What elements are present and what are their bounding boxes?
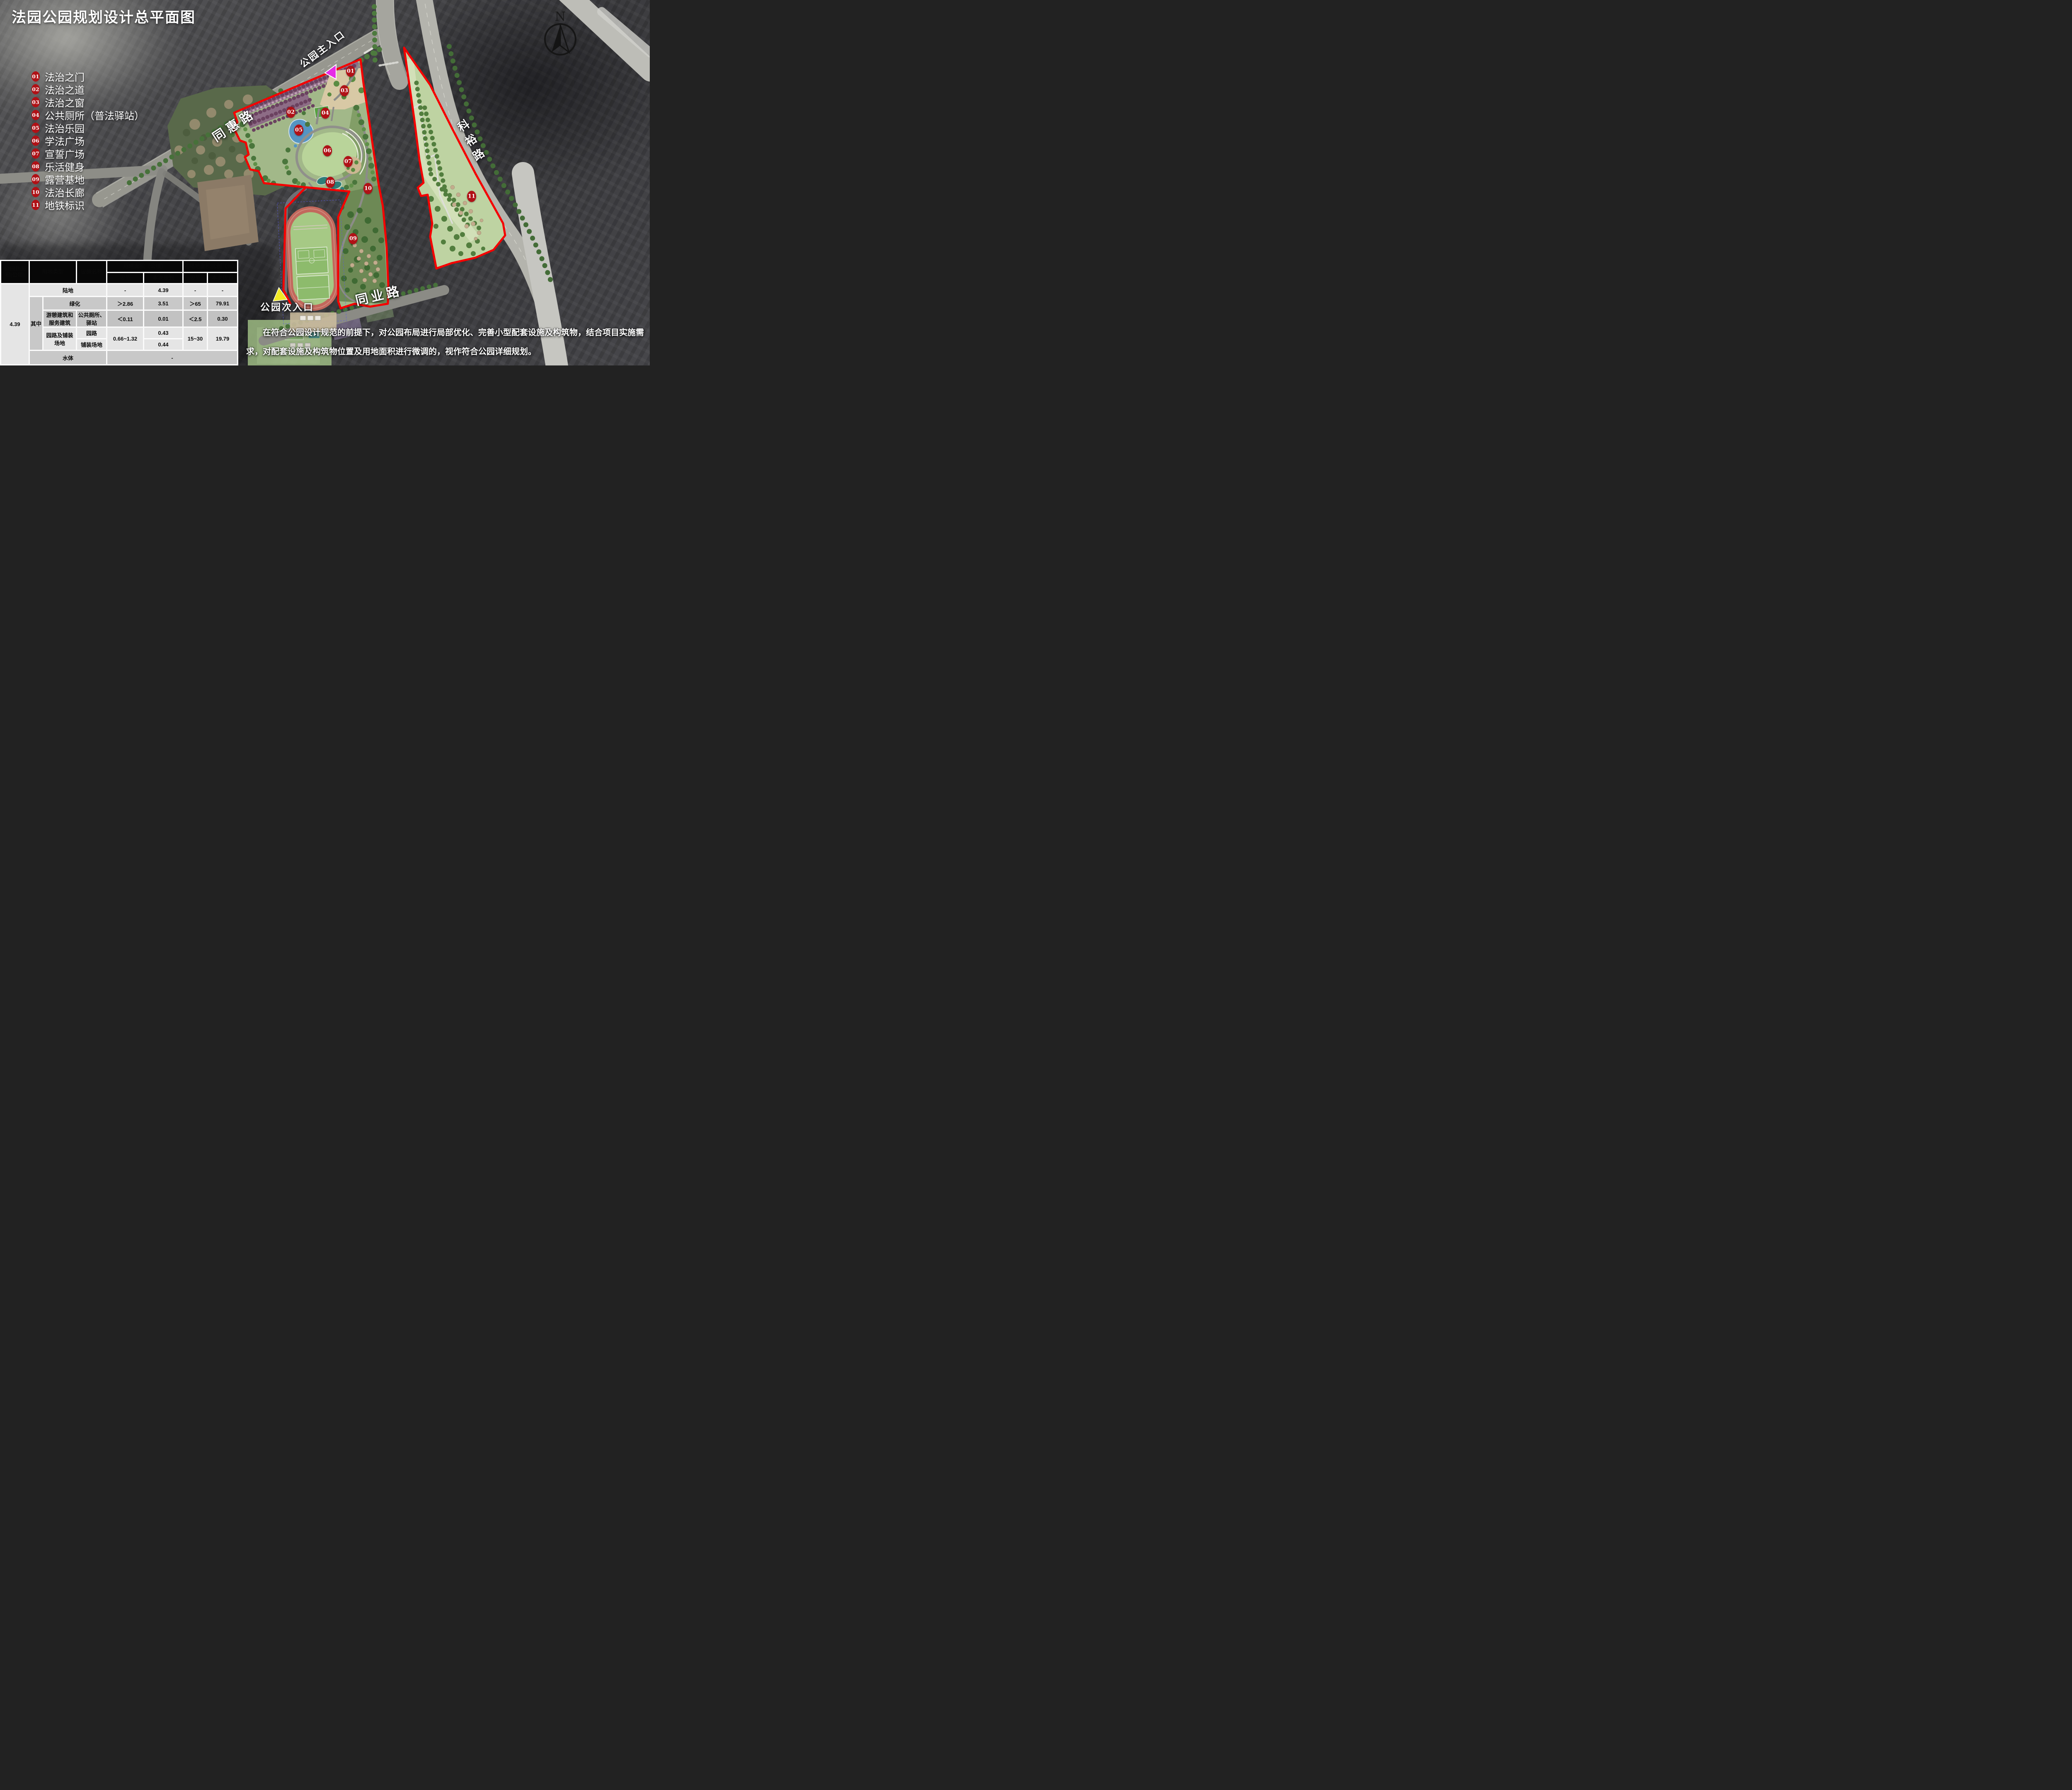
legend-label: 宣誓广场 <box>45 146 85 161</box>
th-std1: 规范 <box>107 273 143 283</box>
map-marker-01: 01 <box>346 66 355 77</box>
legend-item: 10法治长廊 <box>31 185 85 199</box>
planning-note-line2: 求，对配套设施及构筑物位置及用地面积进行微调的，视作符合公园详细规划。 <box>246 345 647 357</box>
planning-note-line1: 在符合公园设计规范的前提下，对公园布局进行局部优化、完善小型配套设施及构筑物，结… <box>263 326 647 338</box>
cell-paths-rplan: 19.79 <box>208 328 237 350</box>
legend-label: 地铁标识 <box>45 198 85 212</box>
legend-label: 乐活健身 <box>45 159 85 174</box>
cell-water-value: - <box>107 351 237 364</box>
th-facility: 设施名称 <box>77 261 106 283</box>
map-marker-10: 10 <box>363 183 373 194</box>
legend-item: 08乐活健身 <box>31 159 85 174</box>
cell-paths-rstd: 15~30 <box>184 328 207 350</box>
compass-needle-solid <box>552 25 560 52</box>
cell-green-plan: 3.51 <box>144 297 182 310</box>
legend-label: 法治长廊 <box>45 185 85 199</box>
th-ratio: 占陆地面积比例（%） <box>184 261 237 272</box>
cell-paved-plan: 0.44 <box>144 339 182 350</box>
legend-item: 06学法广场 <box>31 133 85 148</box>
cell-land-rstd: - <box>184 284 207 296</box>
cell-water-name: 水体 <box>30 351 106 364</box>
map-marker-03: 03 <box>340 85 349 97</box>
cell-building-rplan: 0.30 <box>208 311 237 327</box>
legend-badge: 04 <box>31 110 40 120</box>
cell-building-std: ＜0.11 <box>107 311 143 327</box>
th-plan1: 本次规划 <box>144 273 182 283</box>
cell-qizhong: 其中 <box>30 297 42 350</box>
cell-path-facility: 园路 <box>77 328 106 338</box>
legend-item: 01法治之门 <box>31 69 85 84</box>
park-master-plan: N 法园公园规划设计总平面图 01法治之门 02法治之道 03法治之窗 04公共… <box>0 0 650 365</box>
north-letter: N <box>555 10 566 24</box>
legend-badge: 08 <box>31 161 40 172</box>
cell-green-name: 绿化 <box>44 297 106 310</box>
cell-paths-name: 园路及铺装场地 <box>44 328 76 350</box>
secondary-entrance-label: 公园次入口 <box>260 299 314 313</box>
legend-item: 05法治乐园 <box>31 121 85 135</box>
legend-label: 法治之道 <box>45 82 85 97</box>
th-land-type: 用地类型 <box>30 261 76 283</box>
legend-label: 露营基地 <box>45 172 85 186</box>
legend-item: 11地铁标识 <box>31 198 85 212</box>
th-area: 用地面积（公顷） <box>107 261 182 272</box>
cell-paths-std: 0.66~1.32 <box>107 328 143 350</box>
cell-green-rstd: ＞65 <box>184 297 207 310</box>
th-total-area: 公园总面积(公顷) <box>1 261 29 283</box>
north-compass: N <box>545 10 576 55</box>
map-marker-02: 02 <box>286 107 295 118</box>
map-marker-07: 07 <box>344 156 353 167</box>
page-title: 法园公园规划设计总平面图 <box>12 6 196 27</box>
legend-label: 公共厕所（普法驿站） <box>45 108 144 122</box>
cell-land-plan: 4.39 <box>144 284 182 296</box>
cell-land-name: 陆地 <box>30 284 106 296</box>
cell-green-rplan: 79.91 <box>208 297 237 310</box>
th-std2: 规范 <box>184 273 207 283</box>
map-marker-04: 04 <box>321 108 330 119</box>
legend-item: 03法治之窗 <box>31 95 85 109</box>
legend-badge: 06 <box>31 135 40 146</box>
map-marker-09: 09 <box>349 233 358 244</box>
compass-needle-outline <box>560 25 569 52</box>
cell-paved-facility: 铺装场地 <box>77 339 106 350</box>
legend-item: 09露营基地 <box>31 172 85 186</box>
dirt-field <box>197 175 259 251</box>
cell-building-plan: 0.01 <box>144 311 182 327</box>
legend-label: 法治乐园 <box>45 121 85 135</box>
th-plan2: 本次规划 <box>208 273 237 283</box>
cell-total-area: 4.39 <box>1 284 29 364</box>
map-marker-08: 08 <box>326 177 335 188</box>
legend-badge: 07 <box>31 148 40 159</box>
legend-label: 法治之窗 <box>45 95 85 109</box>
legend-badge: 09 <box>31 174 40 184</box>
legend-badge: 01 <box>31 71 40 82</box>
map-marker-06: 06 <box>323 145 332 157</box>
cell-path-plan: 0.43 <box>144 328 182 338</box>
cell-land-std: - <box>107 284 143 296</box>
cell-green-std: ＞2.86 <box>107 297 143 310</box>
legend-item: 04公共厕所（普法驿站） <box>31 108 144 122</box>
legend-item: 07宣誓广场 <box>31 146 85 161</box>
cell-building-rstd: ＜2.5 <box>184 311 207 327</box>
map-marker-05: 05 <box>294 125 303 136</box>
legend-badge: 03 <box>31 97 40 107</box>
legend-badge: 05 <box>31 123 40 133</box>
legend-label: 学法广场 <box>45 133 85 148</box>
legend-badge: 11 <box>31 200 40 210</box>
planning-note: 在符合公园设计规范的前提下，对公园布局进行局部优化、完善小型配套设施及构筑物，结… <box>246 326 647 357</box>
cell-building-name: 游憩建筑和服务建筑 <box>44 311 76 327</box>
legend-badge: 02 <box>31 84 40 94</box>
legend-label: 法治之门 <box>45 69 85 84</box>
legend-badge: 10 <box>31 187 40 197</box>
map-marker-11: 11 <box>467 191 476 202</box>
legend-item: 02法治之道 <box>31 82 85 97</box>
land-use-table: 公园总面积(公顷) 用地类型 设施名称 用地面积（公顷） 占陆地面积比例（%） … <box>0 260 238 365</box>
cell-land-rplan: - <box>208 284 237 296</box>
cell-building-facility: 公共厕所、驿站 <box>77 311 106 327</box>
